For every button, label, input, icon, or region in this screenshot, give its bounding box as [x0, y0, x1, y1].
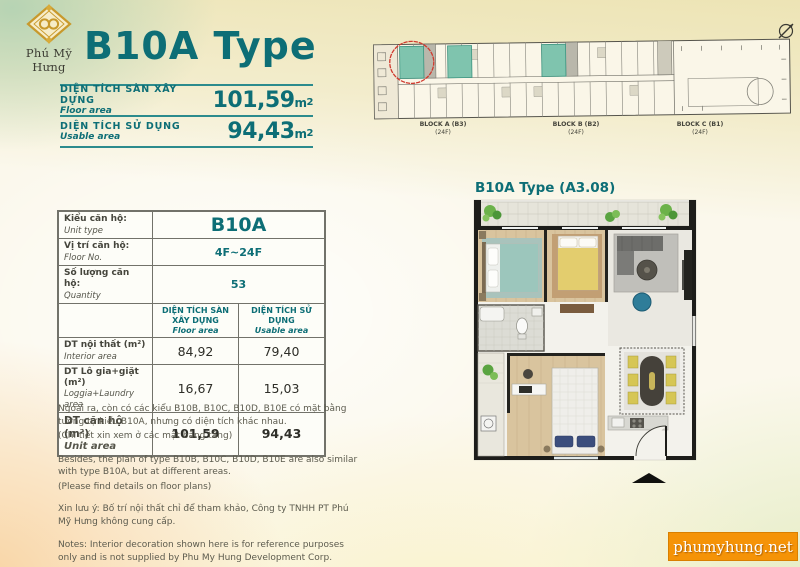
usable-area-label-en: Usable area — [60, 132, 180, 142]
sofa — [617, 236, 663, 251]
highlighted-unit-2 — [448, 46, 472, 78]
desk-chair — [523, 369, 533, 379]
bedroom-1 — [478, 230, 544, 302]
area-summary: DIỆN TÍCH SÀN XÂY DỰNG Floor area 101,59… — [60, 84, 313, 148]
living-room — [608, 230, 692, 346]
laundry-balcony — [478, 353, 504, 456]
floor-area-row: DIỆN TÍCH SÀN XÂY DỰNG Floor area 101,59… — [60, 84, 313, 115]
brand-logo: Phú Mỹ Hưng — [10, 4, 88, 74]
site-plan-image: BLOCK A (B3) (24F) BLOCK B (B2) (24F) BL… — [362, 18, 798, 144]
toilet — [517, 318, 528, 334]
block-a-label: BLOCK A (B3) — [420, 121, 467, 128]
usable-area-value: 94,43m2 — [227, 119, 313, 144]
brochure-page: Phú Mỹ Hưng B10A Type DIỆN TÍCH SÀN XÂY … — [0, 0, 800, 567]
table-header-row: DIỆN TÍCH SÀN XÂY DỰNG Floor area DIỆN T… — [59, 303, 325, 338]
bathtub — [480, 307, 504, 321]
bedroom-3 — [507, 353, 605, 456]
floor-area-label-vi: DIỆN TÍCH SÀN XÂY DỰNG — [60, 84, 213, 106]
loggia-area-label-vi: DT Lô gia+giặt (m²) — [64, 367, 147, 390]
floor-area-col-header-vi: DIỆN TÍCH SÀN XÂY DỰNG — [158, 306, 233, 327]
washing-machine — [481, 416, 496, 431]
dresser — [560, 304, 594, 313]
interior-area-label-en: Interior area — [64, 352, 147, 362]
note-notice-vi: Xin lưu ý: Bố trí nội thất chỉ để tham k… — [58, 503, 358, 528]
quantity-value: 53 — [153, 266, 325, 304]
floor-area-col-header-en: Floor area — [158, 326, 233, 335]
unit-type-label-vi: Kiểu căn hộ: — [64, 214, 147, 225]
note-besides-vi: Ngoài ra, còn có các kiểu B10B, B10C, B1… — [58, 403, 358, 428]
floor-no-label-en: Floor No. — [64, 253, 147, 263]
interior-usable-area: 79,40 — [239, 338, 325, 364]
interior-floor-area: 84,92 — [153, 338, 239, 364]
block-c-floors: (24F) — [692, 129, 708, 136]
block-a-floors: (24F) — [435, 129, 451, 136]
compass-icon — [779, 24, 793, 38]
armchair — [633, 293, 651, 311]
block-c-label: BLOCK C (B1) — [677, 121, 724, 128]
highlighted-unit-3 — [542, 44, 566, 76]
note-notice-en: Notes: Interior decoration shown here is… — [58, 539, 358, 564]
notes-disclaimer: Xin lưu ý: Bố trí nội thất chỉ để tham k… — [58, 503, 358, 566]
note-besides-en: Besides, the plan of type B10B, B10C, B1… — [58, 454, 358, 479]
unit-type-value: B10A — [153, 212, 325, 239]
interior-area-label-vi: DT nội thất (m²) — [64, 340, 147, 351]
table-row: Kiểu căn hộ: Unit type B10A — [59, 212, 325, 239]
table-row: Số lượng căn hộ: Quantity 53 — [59, 266, 325, 304]
floor-no-value: 4F~24F — [153, 239, 325, 266]
usable-area-label-vi: DIỆN TÍCH SỬ DỤNG — [60, 121, 180, 132]
usable-area-col-header-vi: DIỆN TÍCH SỬ DỤNG — [244, 306, 319, 327]
block-b-floors: (24F) — [568, 129, 584, 136]
quantity-label-vi: Số lượng căn hộ: — [64, 268, 147, 291]
stove — [630, 418, 644, 428]
entrance-arrow-icon — [632, 473, 666, 483]
phu-my-hung-logo-icon — [21, 4, 77, 44]
quantity-label-en: Quantity — [64, 291, 147, 301]
floor-area-label-en: Floor area — [60, 106, 213, 116]
core-block-2 — [565, 42, 577, 76]
tv-console — [684, 250, 692, 300]
floor-no-label-vi: Vị trí căn hộ: — [64, 241, 147, 252]
floor-area-value: 101,59m2 — [213, 88, 313, 113]
kitchen-sink — [612, 418, 624, 427]
dining-area — [620, 348, 684, 414]
floor-plan-image — [470, 198, 700, 463]
highlighted-unit-1 — [400, 46, 424, 78]
page-title: B10A Type — [84, 24, 317, 68]
table-row: DT nội thất (m²) Interior area 84,92 79,… — [59, 338, 325, 364]
table-row: Vị trí căn hộ: Floor No. 4F~24F — [59, 239, 325, 266]
note-besides-en-detail: (Please find details on floor plans) — [58, 481, 358, 494]
watermark-link[interactable]: phumyhung.net — [668, 532, 798, 561]
usable-area-col-header-en: Usable area — [244, 326, 319, 335]
notes-similar-types: Ngoài ra, còn có các kiểu B10B, B10C, B1… — [58, 403, 358, 496]
core-block-3 — [657, 41, 671, 75]
block-b-label: BLOCK B (B2) — [553, 121, 600, 128]
brand-name: Phú Mỹ Hưng — [10, 46, 88, 74]
floor-plan-title: B10A Type (A3.08) — [475, 180, 615, 196]
note-besides-vi-detail: (Chi tiết xin xem ở các mặt bằng tầng) — [58, 430, 358, 443]
unit-type-label-en: Unit type — [64, 226, 147, 236]
sink — [532, 308, 542, 316]
bedroom-2 — [547, 230, 605, 313]
bathroom — [478, 305, 544, 351]
usable-area-row: DIỆN TÍCH SỬ DỤNG Usable area 94,43m2 — [60, 115, 313, 148]
